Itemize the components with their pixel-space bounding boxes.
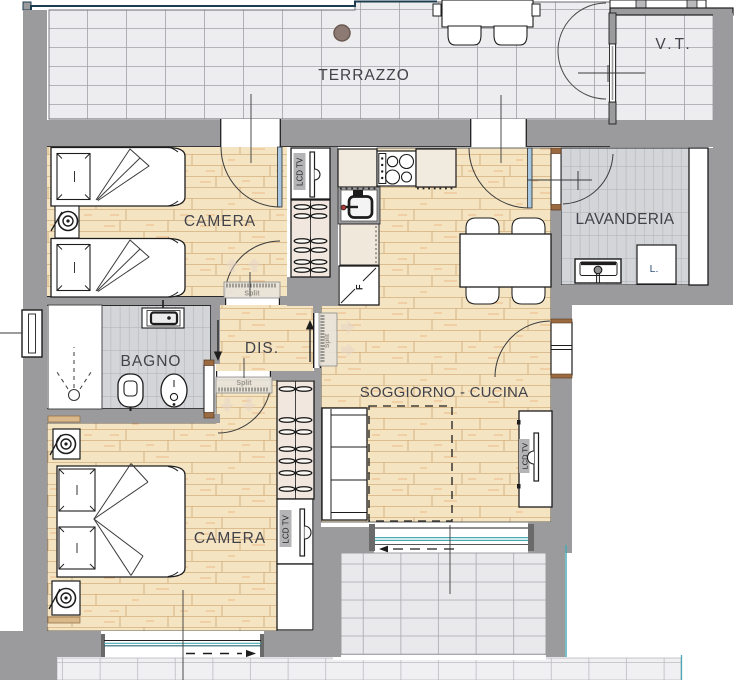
svg-text:BAGNO: BAGNO <box>121 353 182 370</box>
svg-text:CAMERA: CAMERA <box>194 530 266 547</box>
svg-text:LCD TV: LCD TV <box>296 157 305 186</box>
svg-text:F: F <box>355 284 365 290</box>
svg-text:SOGGIORNO - CUCINA: SOGGIORNO - CUCINA <box>360 384 529 401</box>
svg-text:CAMERA: CAMERA <box>184 213 256 230</box>
svg-text:TERRAZZO: TERRAZZO <box>318 67 410 84</box>
svg-text:Split: Split <box>324 333 331 348</box>
svg-text:Split: Split <box>244 291 260 298</box>
svg-text:L.: L. <box>650 263 659 275</box>
svg-text:DIS.: DIS. <box>245 340 279 357</box>
svg-text:V.T.: V.T. <box>655 36 692 53</box>
svg-text:Split: Split <box>236 380 252 387</box>
svg-text:LCD TV: LCD TV <box>282 515 291 544</box>
svg-text:LAVANDERIA: LAVANDERIA <box>576 211 675 228</box>
